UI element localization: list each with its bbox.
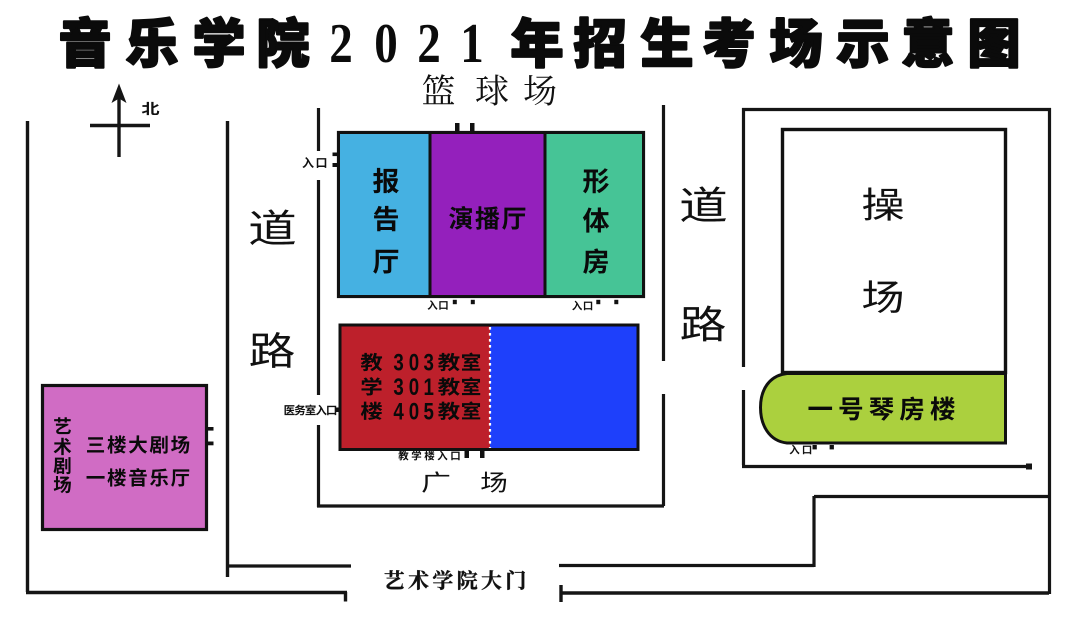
svg-text:2: 2 — [417, 13, 441, 75]
svg-text:2: 2 — [329, 13, 353, 75]
svg-text:3: 3 — [393, 350, 404, 377]
svg-text:5: 5 — [423, 398, 434, 425]
svg-text:3: 3 — [423, 350, 434, 377]
svg-text:1: 1 — [460, 13, 484, 75]
svg-text:3: 3 — [393, 374, 404, 401]
svg-text:0: 0 — [409, 374, 419, 401]
svg-text:0: 0 — [409, 398, 419, 425]
svg-text:4: 4 — [393, 398, 404, 425]
svg-text:1: 1 — [423, 374, 434, 401]
svg-text:0: 0 — [374, 13, 398, 75]
svg-text:0: 0 — [409, 350, 419, 377]
